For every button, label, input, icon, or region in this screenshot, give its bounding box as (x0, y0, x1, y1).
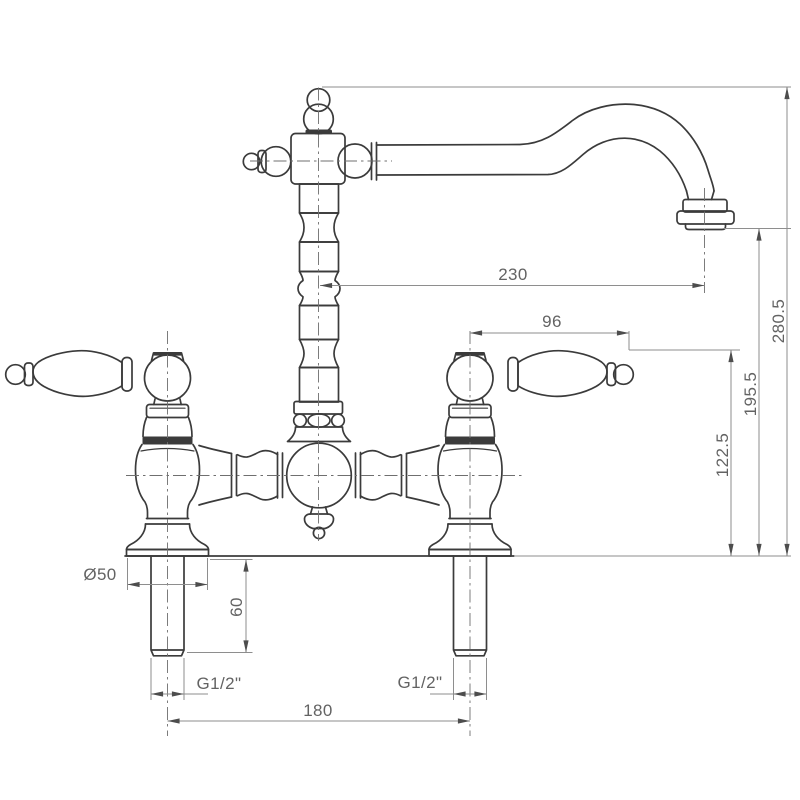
column-bead (308, 414, 330, 427)
centerlines (126, 88, 705, 737)
left-handle (6, 351, 132, 397)
spout-outer-edge (377, 104, 715, 191)
dim-label-spout-reach: 230 (498, 265, 528, 284)
column-segment (300, 184, 339, 213)
hub-finial-cap (305, 514, 334, 529)
column-segment (300, 368, 339, 403)
faucet-dimension-drawing: 230 96 280.5 195.5 122.5 Ø50 60 G1/2" G1… (0, 0, 800, 800)
column-bead (294, 414, 307, 427)
dim-label-thread-right: G1/2" (398, 673, 443, 692)
dim-label-shank-length: 60 (227, 597, 246, 617)
dim-label-thread-left: G1/2" (197, 674, 242, 693)
column-segment (300, 242, 339, 272)
spout-outlet-band (677, 211, 734, 224)
column-waist (300, 340, 339, 368)
dimensions: 230 96 280.5 195.5 122.5 Ø50 60 G1/2" G1… (83, 87, 791, 721)
column-waist (300, 213, 339, 242)
column-bead (332, 414, 345, 427)
dim-label-base-diameter: Ø50 (83, 565, 116, 584)
dim-label-hole-centres: 180 (303, 701, 333, 720)
right-handle (508, 351, 633, 397)
column-ball-joint (298, 272, 340, 306)
dim-label-handle-length: 96 (542, 312, 562, 331)
spout-neck (687, 191, 715, 200)
dim-label-handle-height: 122.5 (713, 433, 732, 478)
cross-body (291, 134, 345, 185)
dim-label-spout-height: 195.5 (741, 372, 760, 417)
dim-label-overall-height: 280.5 (769, 299, 788, 344)
column-flare (288, 427, 351, 442)
technical-drawing-canvas: 230 96 280.5 195.5 122.5 Ø50 60 G1/2" G1… (0, 0, 800, 800)
column-segment (300, 306, 339, 340)
spout-outlet-collar (683, 200, 727, 213)
spout-inner-edge (377, 138, 687, 191)
